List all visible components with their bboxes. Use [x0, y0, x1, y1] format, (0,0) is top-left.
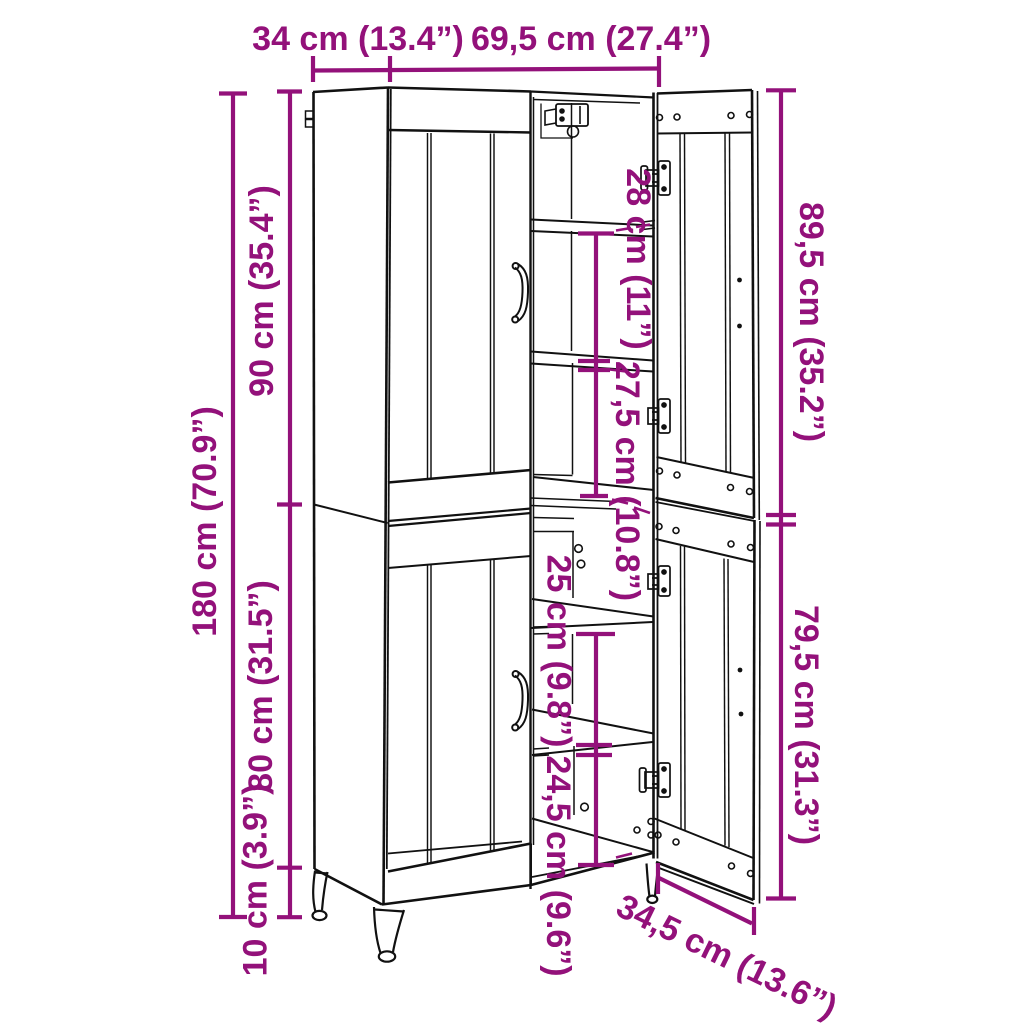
svg-text:80 cm (31.5”): 80 cm (31.5”): [242, 580, 280, 792]
svg-text:10 cm (3.9”): 10 cm (3.9”): [237, 784, 275, 977]
svg-text:24,5 cm (9.6”): 24,5 cm (9.6”): [539, 755, 577, 976]
svg-text:79,5 cm (31.3”): 79,5 cm (31.3”): [787, 605, 825, 845]
svg-text:25 cm (9.8”): 25 cm (9.8”): [540, 555, 578, 748]
svg-text:89,5 cm (35.2”): 89,5 cm (35.2”): [792, 202, 830, 442]
svg-text:34 cm (13.4”): 34 cm (13.4”): [252, 20, 464, 58]
svg-text:69,5 cm (27.4”): 69,5 cm (27.4”): [471, 20, 711, 58]
svg-text:27,5 cm (10.8”): 27,5 cm (10.8”): [608, 361, 646, 601]
svg-text:90 cm (35.4”): 90 cm (35.4”): [243, 185, 281, 397]
svg-text:28 cm (11”): 28 cm (11”): [619, 168, 657, 349]
svg-text:180 cm (70.9”): 180 cm (70.9”): [186, 406, 224, 637]
